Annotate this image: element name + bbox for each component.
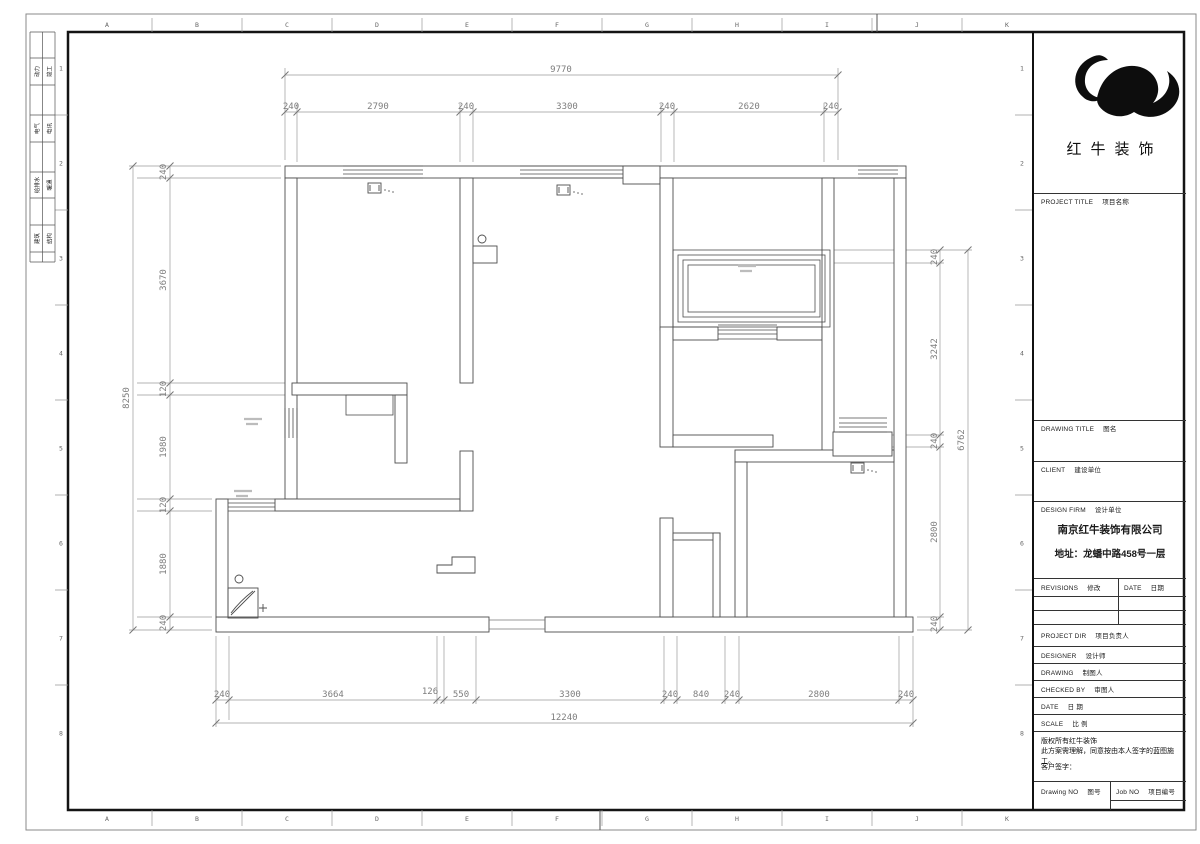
grid-letter: E	[465, 21, 469, 29]
client-signature-label: 客户签字：	[1041, 763, 1179, 773]
grid-letter: G	[645, 21, 649, 29]
grid-letter: K	[1005, 815, 1009, 823]
grid-number: 8	[1020, 730, 1024, 738]
windows	[228, 166, 898, 629]
grid-letter: G	[645, 815, 649, 823]
grid-letter: A	[105, 815, 109, 823]
drawing-by-label: DRAWING制图人	[1041, 667, 1103, 677]
firm-name: 南京红牛装饰有限公司	[1034, 522, 1186, 537]
job-no-label: Job NO项目编号	[1116, 786, 1175, 796]
grid-number: 8	[59, 730, 63, 738]
grid-letter: F	[555, 815, 559, 823]
grid-number: 5	[59, 445, 63, 453]
bay-window-tracks	[673, 250, 830, 327]
grid-number: 1	[59, 65, 63, 73]
project-dir-label: PROJECT DIR项目负责人	[1041, 630, 1129, 640]
shower-tray	[228, 588, 258, 618]
dim-label: 2620	[738, 102, 760, 112]
grid-number: 4	[59, 350, 63, 358]
signoff-label: 给排水	[33, 176, 41, 193]
designer-label: DESIGNER设计师	[1041, 650, 1106, 660]
dim-label: 6762	[957, 429, 967, 451]
grid-letter: I	[825, 21, 829, 29]
signoff-label: 建筑	[33, 233, 41, 245]
title-block: 红牛装饰 PROJECT TITLE项目名称 DRAWING TITLE图名 C…	[1032, 32, 1186, 810]
scale-label: SCALE比 例	[1041, 718, 1088, 728]
grid-number: 5	[1020, 445, 1024, 453]
dim-label: 3670	[159, 269, 169, 291]
plus-mark	[259, 604, 267, 612]
dim-label: 240	[159, 615, 169, 631]
grid-number: 1	[1020, 65, 1024, 73]
grid-letter: E	[465, 815, 469, 823]
walls	[216, 166, 913, 632]
signoff-strip: 动力 竣工 电气 电讯 给排水 暖通 建筑 结构	[30, 32, 55, 262]
grid-letter: H	[735, 815, 739, 823]
cabinet	[346, 395, 393, 415]
dim-label: 9770	[550, 65, 572, 75]
project-title-label: PROJECT TITLE项目名称	[1041, 196, 1129, 206]
company-logo	[1034, 40, 1186, 140]
dim-label: 240	[724, 690, 740, 700]
grid-number: 3	[59, 255, 63, 263]
signoff-label: 竣工	[46, 66, 54, 78]
design-firm-label: DESIGN FIRM设计单位	[1041, 504, 1122, 514]
junction-box	[557, 185, 583, 195]
dim-label: 240	[659, 102, 675, 112]
revisions-label: REVISIONS修改	[1041, 582, 1101, 592]
dim-label: 2790	[367, 102, 389, 112]
grid-letter: I	[825, 815, 829, 823]
dim-label: 240	[930, 433, 940, 449]
dim-label: 240	[458, 102, 474, 112]
dim-label: 120	[159, 497, 169, 513]
signoff-label: 暖通	[46, 179, 54, 191]
pipe-riser	[478, 235, 486, 243]
dim-label: 2800	[808, 690, 830, 700]
drawing-sheet: A B C D E F G H I J K A B C D E F G H I …	[0, 0, 1200, 844]
grid-letter: F	[555, 21, 559, 29]
signoff-label: 电气	[33, 123, 41, 135]
grid-letter: B	[195, 21, 199, 29]
grid-letter: D	[375, 21, 379, 29]
grid-letter: K	[1005, 21, 1009, 29]
date-row-label: DATE日 期	[1041, 701, 1083, 711]
junction-box	[851, 463, 877, 473]
dim-label: 12240	[550, 713, 577, 723]
grid-number: 4	[1020, 350, 1024, 358]
client-label: CLIENT建设单位	[1041, 464, 1101, 474]
window-band	[839, 418, 887, 432]
dim-label: 240	[930, 249, 940, 265]
dim-label: 120	[159, 381, 169, 397]
grid-letter: A	[105, 21, 109, 29]
junction-box	[368, 183, 394, 193]
grid-letter: C	[285, 21, 289, 29]
dim-label: 1880	[159, 553, 169, 575]
grid-number: 2	[59, 160, 63, 168]
grid-letter: J	[915, 21, 919, 29]
dim-label: 3242	[930, 338, 940, 360]
dim-label: 240	[214, 690, 230, 700]
dim-label: 240	[898, 690, 914, 700]
grid-letter: H	[735, 21, 739, 29]
dim-label: 126	[422, 687, 438, 697]
entry-sill	[489, 620, 545, 629]
floor-plan-canvas: A B C D E F G H I J K A B C D E F G H I …	[0, 0, 1200, 844]
dim-label: 240	[823, 102, 839, 112]
checked-by-label: CHECKED BY审图人	[1041, 684, 1114, 694]
drawing-title-label: DRAWING TITLE图名	[1041, 423, 1117, 433]
dim-label: 840	[693, 690, 709, 700]
drawing-no-label: Drawing NO图号	[1041, 786, 1101, 796]
grid-letter: D	[375, 815, 379, 823]
dim-label: 240	[930, 616, 940, 632]
grid-letter: B	[195, 815, 199, 823]
dim-label: 240	[662, 690, 678, 700]
dim-label: 3664	[322, 690, 344, 700]
reference-grid: A B C D E F G H I J K A B C D E F G H I …	[55, 18, 1032, 826]
window-band	[228, 499, 275, 511]
grid-number: 7	[1020, 635, 1024, 643]
grid-number: 7	[59, 635, 63, 643]
grid-letter: C	[285, 815, 289, 823]
grid-number: 2	[1020, 160, 1024, 168]
dim-label: 2800	[930, 521, 940, 543]
grid-letter: J	[915, 815, 919, 823]
dim-label: 240	[283, 102, 299, 112]
brand-name: 红牛装饰	[1034, 138, 1186, 159]
dim-label: 3300	[556, 102, 578, 112]
floor-drain	[235, 575, 243, 583]
dim-label: 240	[159, 164, 169, 180]
date-column-label: DATE日期	[1124, 582, 1164, 592]
dim-label: 8250	[122, 387, 132, 409]
grid-number: 3	[1020, 255, 1024, 263]
signoff-label: 电讯	[46, 123, 54, 135]
dim-label: 3300	[559, 690, 581, 700]
grid-number: 6	[59, 540, 63, 548]
grid-number: 6	[1020, 540, 1024, 548]
firm-address: 地址：龙蟠中路458号一层	[1034, 546, 1186, 560]
sheet-frame	[26, 14, 1196, 830]
dim-label: 1980	[159, 436, 169, 458]
signoff-label: 结构	[46, 233, 54, 245]
fixtures	[228, 183, 877, 618]
dim-label: 550	[453, 690, 469, 700]
signoff-label: 动力	[33, 66, 41, 77]
